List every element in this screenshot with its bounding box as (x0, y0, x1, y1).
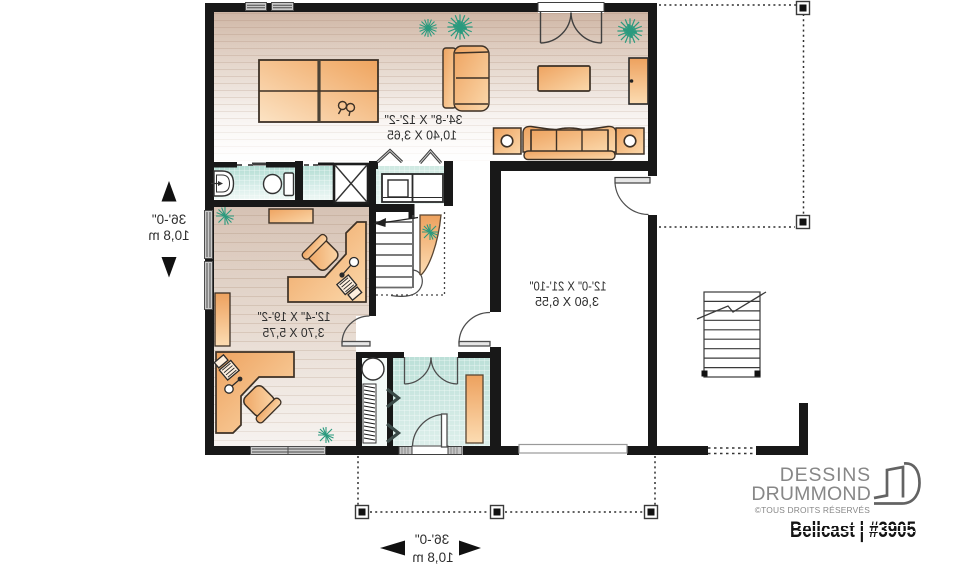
svg-text:12'-4" X 19'-2": 12'-4" X 19'-2" (258, 310, 331, 324)
svg-text:36'-0": 36'-0" (152, 212, 187, 227)
svg-text:10,8 m: 10,8 m (148, 228, 189, 243)
svg-text:12'-0" X 21'-10": 12'-0" X 21'-10" (530, 280, 607, 294)
svg-text:DRUMMOND: DRUMMOND (751, 483, 871, 505)
svg-text:©TOUS DROITS RÉSERVÉS: ©TOUS DROITS RÉSERVÉS (755, 505, 870, 515)
svg-text:34'-8" X 12'-2": 34'-8" X 12'-2" (385, 113, 463, 127)
svg-text:Bellcast | #3905: Bellcast | #3905 (790, 517, 916, 542)
svg-text:36'-0": 36'-0" (415, 532, 450, 547)
svg-text:10,40 X 3,65: 10,40 X 3,65 (387, 129, 457, 143)
svg-text:10,8 m: 10,8 m (412, 550, 453, 565)
svg-text:3,60 X 6,55: 3,60 X 6,55 (535, 295, 599, 309)
svg-text:3,70 X 5,75: 3,70 X 5,75 (262, 326, 324, 340)
